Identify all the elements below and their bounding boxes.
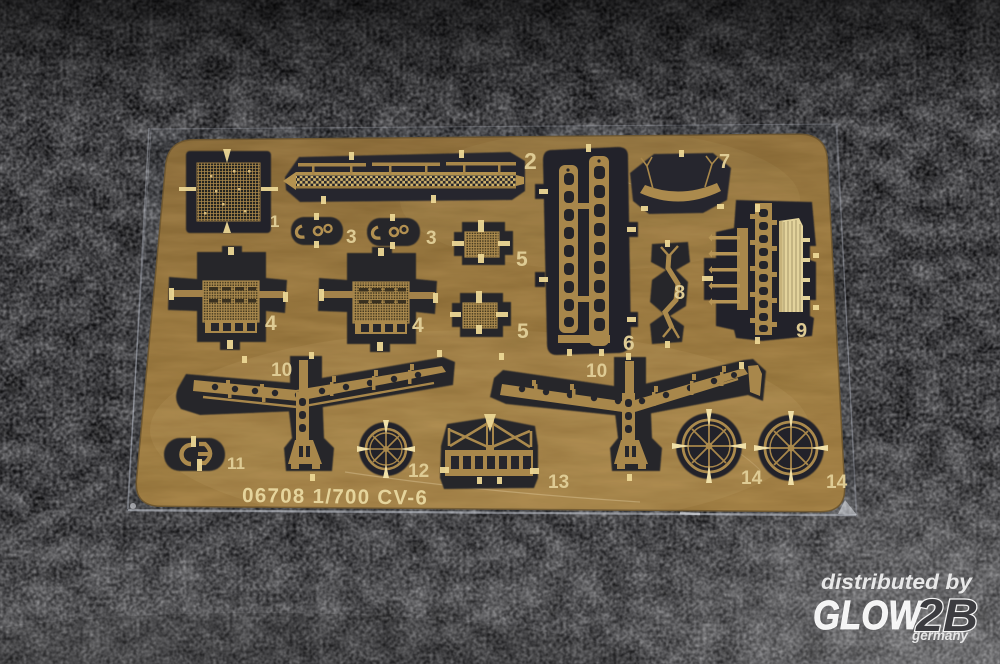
svg-text:1: 1	[270, 212, 279, 231]
svg-text:9: 9	[796, 320, 807, 342]
svg-text:13: 13	[548, 472, 569, 493]
svg-text:4: 4	[412, 314, 424, 337]
svg-text:7: 7	[719, 151, 730, 173]
svg-text:6: 6	[623, 332, 635, 355]
svg-text:10: 10	[586, 361, 607, 382]
svg-text:12: 12	[408, 461, 429, 482]
svg-text:3: 3	[346, 227, 357, 248]
svg-text:3: 3	[426, 228, 437, 249]
svg-text:5: 5	[517, 320, 529, 343]
svg-text:germany: germany	[911, 628, 969, 643]
svg-text:GLOW: GLOW	[813, 592, 924, 638]
svg-text:4: 4	[265, 312, 277, 335]
svg-text:5: 5	[516, 248, 528, 271]
svg-text:8: 8	[674, 282, 685, 304]
svg-text:06708 1/700 CV-6: 06708 1/700 CV-6	[242, 484, 428, 510]
svg-text:14: 14	[826, 472, 848, 493]
svg-text:10: 10	[271, 360, 292, 381]
svg-text:2: 2	[524, 148, 537, 174]
svg-text:14: 14	[741, 468, 763, 489]
svg-text:11: 11	[227, 454, 245, 473]
